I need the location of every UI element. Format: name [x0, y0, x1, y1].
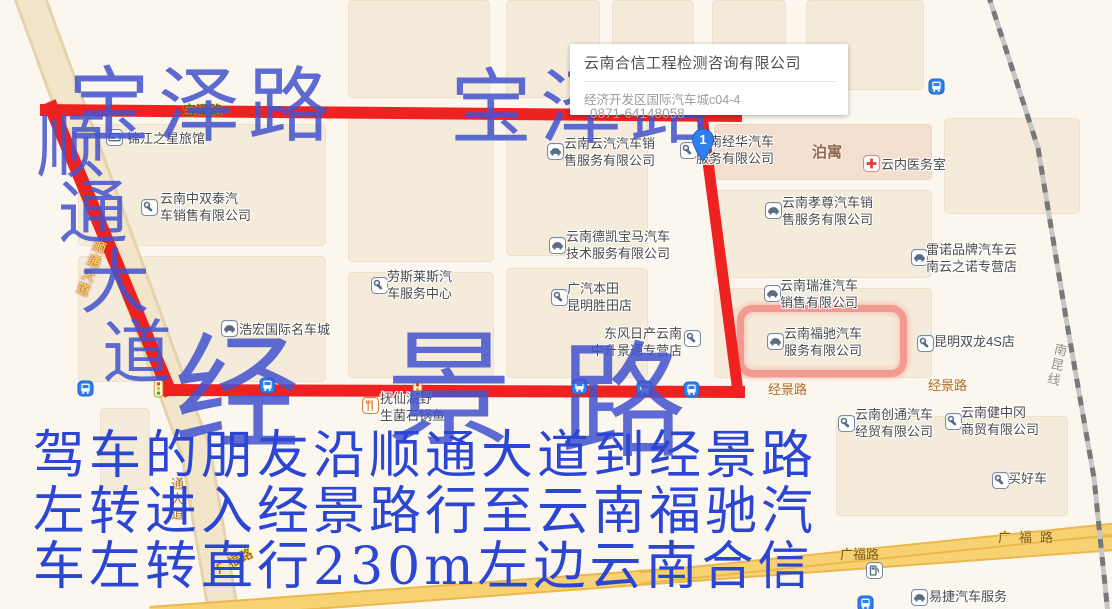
road-name-label: 经景路: [928, 375, 967, 394]
bus-stop-icon[interactable]: [77, 380, 94, 402]
poi-label[interactable]: 雷诺品牌汽车云南云之诺专营店: [926, 241, 1017, 275]
poi-label[interactable]: 云南孝尊汽车销售服务有限公司: [782, 194, 873, 228]
poi-label[interactable]: 云内医务室: [881, 156, 946, 173]
svg-text:1: 1: [699, 132, 706, 147]
annotation-shuntongdadao-char: 道: [102, 318, 172, 388]
car-icon[interactable]: [765, 202, 782, 219]
popup-company-title: 云南合信工程检测咨询有限公司: [584, 52, 836, 82]
info-popup[interactable]: 云南合信工程检测咨询有限公司 经济开发区国际汽车城c04-4: [570, 44, 848, 115]
poi-label[interactable]: 云南德凯宝马汽车技术服务有限公司: [566, 228, 670, 262]
poi-label[interactable]: 云南健中冈商贸有限公司: [961, 404, 1039, 438]
road-name-label: 广福路: [998, 527, 1061, 546]
wrench-icon[interactable]: [371, 277, 388, 294]
annotation-shuntongdadao-char: 大: [80, 248, 150, 318]
road-name-label: 广福路: [840, 544, 879, 563]
wrench-icon[interactable]: [917, 335, 934, 352]
wrench-icon[interactable]: [838, 415, 855, 432]
annotation-shuntongdadao-char: 通: [58, 178, 128, 248]
poi-label[interactable]: 昆明双龙4S店: [934, 333, 1015, 350]
hospital-icon[interactable]: [863, 155, 880, 172]
bus-stop-icon[interactable]: [857, 595, 874, 609]
map-canvas[interactable]: 锦江之星旅馆云南中双泰汽车销售有限公司云南云汽汽车销售服务有限公司云南经华汽车服…: [0, 0, 1112, 609]
car-icon[interactable]: [911, 589, 928, 606]
popup-phone: 0871-64148058: [590, 106, 685, 121]
wrench-icon[interactable]: [551, 289, 568, 306]
wrench-icon[interactable]: [945, 413, 962, 430]
directions-line-2: 左转进入经景路行至云南福驰汽: [33, 486, 817, 538]
wrench-icon[interactable]: [141, 199, 158, 216]
poi-label[interactable]: 云南瑞淮汽车销售有限公司: [780, 277, 858, 311]
bus-stop-icon[interactable]: [928, 78, 945, 100]
wrench-icon[interactable]: [992, 472, 1009, 489]
car-icon[interactable]: [549, 237, 566, 254]
poi-label[interactable]: 易捷汽车服务: [929, 588, 1007, 605]
poi-label[interactable]: 买好车: [1008, 470, 1047, 487]
annotation-baozelu-left: 宝泽路: [68, 66, 338, 148]
car-icon[interactable]: [764, 285, 781, 302]
map-pin-1[interactable]: 1: [690, 128, 716, 162]
poi-label[interactable]: 劳斯莱斯汽车服务中心: [387, 268, 452, 302]
poi-label[interactable]: 云南福驰汽车服务有限公司: [784, 325, 862, 359]
directions-line-3: 车左转直行230m左边云南合信: [33, 541, 814, 593]
poi-label[interactable]: 云南创通汽车经贸有限公司: [855, 406, 933, 440]
road-name-label: 经景路: [768, 379, 807, 398]
restaurant-icon[interactable]: [362, 397, 379, 414]
popup-address: 经济开发区国际汽车城c04-4: [584, 82, 836, 108]
gas-icon[interactable]: [866, 562, 883, 579]
poi-label[interactable]: 广汽本田昆明胜田店: [567, 280, 632, 314]
poi-label[interactable]: 云南中双泰汽车销售有限公司: [160, 190, 251, 224]
car-icon[interactable]: [767, 333, 784, 350]
wrench-icon[interactable]: [684, 330, 701, 347]
building-label: 泊寓: [812, 141, 842, 162]
directions-line-1: 驾车的朋友沿顺通大道到经景路: [33, 430, 817, 482]
